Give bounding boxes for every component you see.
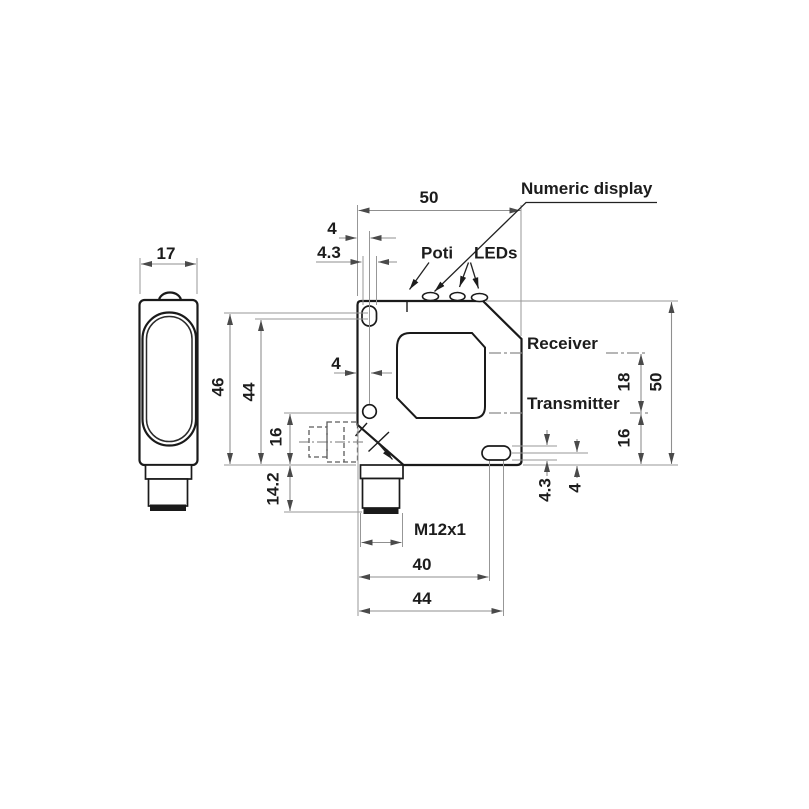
dim-slot-dia-4-3: 4.3 <box>535 430 554 502</box>
numeric-display-leader <box>435 203 658 292</box>
dim-width-40: 40 <box>359 555 489 577</box>
mounting-hole-bottom-left <box>363 405 377 419</box>
led-window-1 <box>450 293 465 301</box>
mounting-slot-bottom-right <box>482 446 511 460</box>
dim-value: 17 <box>157 244 176 263</box>
side-connector-neck <box>146 465 192 479</box>
dim-value: 50 <box>420 188 439 207</box>
dim-connector-length-14-2: 14.2 <box>263 466 290 511</box>
dim-width-44: 44 <box>359 589 503 611</box>
dim-value: 4 <box>565 483 584 493</box>
hidden-side-connector <box>299 422 364 462</box>
display-window <box>423 293 439 301</box>
dim-value: 16 <box>614 429 633 448</box>
dim-value: 14.2 <box>263 472 282 505</box>
dim-value: 16 <box>266 428 285 447</box>
receiver-label: Receiver <box>527 334 598 353</box>
leds-leader-2 <box>471 263 479 289</box>
dim-side-width-17: 17 <box>141 244 196 264</box>
numeric-display-label: Numeric display <box>521 179 653 198</box>
poti-label: Poti <box>421 244 453 263</box>
dim-height-46: 46 <box>208 314 230 464</box>
technical-drawing-page: 50 4 4.3 4 17 46 44 <box>0 0 809 809</box>
dim-transmitter-bottom-right-16: 16 <box>614 414 641 464</box>
thread-label: M12x1 <box>414 520 466 539</box>
dim-front-width-50: 50 <box>359 188 521 211</box>
poti-leader <box>410 263 430 290</box>
dim-value: 40 <box>413 555 432 574</box>
side-lens-outer <box>143 313 197 446</box>
front-connector-tip <box>364 508 399 515</box>
dim-hole-offset-4: 4 <box>327 219 396 238</box>
dim-slot-offset-4: 4 <box>565 439 584 493</box>
dim-transmitter-bottom-left-16: 16 <box>266 414 290 464</box>
dim-value: 46 <box>208 378 227 397</box>
sensor-dimension-drawing: 50 4 4.3 4 17 46 44 <box>0 0 809 809</box>
dim-value: 50 <box>646 373 665 392</box>
dim-height-44: 44 <box>239 320 261 464</box>
dim-front-height-50: 50 <box>646 302 671 464</box>
leds-label: LEDs <box>474 244 517 263</box>
side-view <box>140 293 198 512</box>
side-connector-tip <box>150 505 186 512</box>
front-view <box>299 293 522 515</box>
lens-window <box>397 333 485 418</box>
transmitter-label: Transmitter <box>527 394 620 413</box>
dim-value: 44 <box>413 589 432 608</box>
dim-value: 4.3 <box>535 478 554 502</box>
led-window-2 <box>472 294 488 302</box>
dim-thread-m12: M12x1 <box>362 520 466 543</box>
dim-value: 44 <box>239 382 258 401</box>
dim-value: 4 <box>331 354 341 373</box>
dim-hole-dia-4-3: 4.3 <box>316 243 397 262</box>
side-connector-barrel <box>149 479 188 506</box>
dim-value: 4.3 <box>317 243 341 262</box>
dim-value: 4 <box>327 219 337 238</box>
front-connector-neck <box>361 465 404 479</box>
front-connector-barrel <box>363 479 400 509</box>
dim-value: 18 <box>614 373 633 392</box>
